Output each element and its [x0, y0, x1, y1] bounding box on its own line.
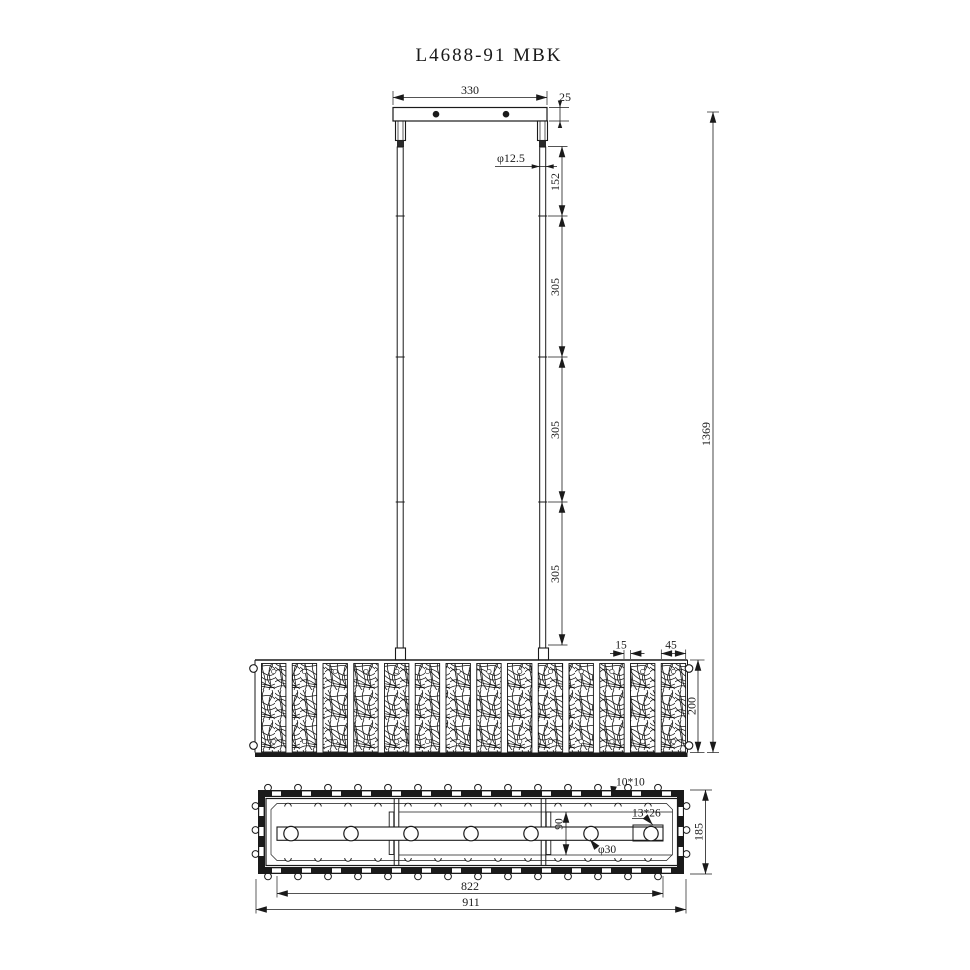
band-dash: [259, 847, 263, 856]
band-dash: [332, 868, 341, 872]
band-dash: [452, 791, 461, 795]
drawing-sheet: L4688-91 MBK 330 25: [0, 0, 970, 970]
lamp-holder: [344, 826, 358, 840]
crystal-panels: [262, 664, 686, 753]
canopy-screw: [433, 111, 440, 118]
dim-slot-size: 13*26: [632, 808, 661, 820]
crystal-clip: [495, 803, 502, 806]
panel-pin: [641, 669, 645, 673]
edge-bead: [252, 827, 259, 834]
band-dash: [632, 791, 641, 795]
band-dash: [422, 791, 431, 795]
panel-pin: [425, 669, 429, 673]
model-title: L4688-91 MBK: [416, 45, 563, 66]
crystal-panel: [600, 664, 624, 753]
lamp-holder: [464, 826, 478, 840]
shade-bottom-rail: [255, 753, 688, 758]
canopy-screw: [503, 111, 510, 118]
crystal-clip: [345, 803, 352, 806]
crystal-clip: [405, 858, 412, 861]
edge-bead: [295, 873, 302, 880]
dim-bead-size: 10*10: [616, 777, 645, 789]
lamp-holder: [584, 826, 598, 840]
crystal-panel: [292, 664, 316, 753]
panel-pin: [333, 669, 337, 673]
band-dash: [452, 868, 461, 872]
dim-shade-depth: 185: [692, 823, 706, 841]
panel-pin: [518, 739, 522, 743]
crystal-clip: [375, 803, 382, 806]
panel-pin: [395, 669, 399, 673]
shade-hook: [250, 742, 258, 750]
shade-hook: [250, 665, 258, 673]
band-dash: [632, 868, 641, 872]
band-dash: [512, 791, 521, 795]
panel-pin: [641, 739, 645, 743]
crystal-clip: [615, 803, 622, 806]
dim-center-offset: 90: [554, 818, 566, 830]
crystal-clip: [315, 803, 322, 806]
band-dash: [302, 791, 311, 795]
edge-bead: [445, 873, 452, 880]
ceiling-canopy: [393, 108, 547, 122]
crystal-panel: [631, 664, 655, 753]
crystal-clip: [435, 858, 442, 861]
panel-pin: [425, 739, 429, 743]
lamp-holder: [524, 826, 538, 840]
hanging-rod-left: [397, 147, 403, 648]
edge-bead: [265, 873, 272, 880]
shade-hanger: [539, 648, 549, 660]
edge-bead: [625, 873, 632, 880]
dim-rod-segment-2: 305: [548, 278, 562, 296]
crystal-clip: [465, 803, 472, 806]
crystal-clip: [345, 858, 352, 861]
crystal-clip: [405, 803, 412, 806]
front-view: 330 25 φ12.5: [250, 83, 719, 757]
panel-pin: [364, 739, 368, 743]
band-dash: [572, 791, 581, 795]
shade-hanger: [396, 648, 406, 660]
panel-pin: [610, 669, 614, 673]
band-dash: [392, 791, 401, 795]
crystal-panel: [323, 664, 347, 753]
dim-crystal-gap: 15: [615, 640, 627, 652]
panel-pin: [518, 669, 522, 673]
dim-overall-length: 911: [462, 895, 480, 909]
panel-pin: [395, 739, 399, 743]
dim-rod-diameter: φ12.5: [497, 151, 525, 165]
crystal-clip: [465, 858, 472, 861]
crystal-clip: [285, 858, 292, 861]
arrowhead: [532, 164, 540, 169]
band-dash: [272, 868, 281, 872]
dim-shade-height: 200: [685, 697, 699, 715]
crystal-clip: [555, 858, 562, 861]
dim-rod-segment-1: 152: [548, 173, 562, 191]
edge-bead: [252, 803, 259, 810]
dim-holder-diameter: φ30: [598, 844, 616, 856]
band-dash: [482, 868, 491, 872]
crystal-clip: [585, 858, 592, 861]
band-dash: [662, 868, 671, 872]
dim-rod-segment-4: 305: [548, 565, 562, 583]
crystal-clip: [285, 803, 292, 806]
edge-bead: [385, 873, 392, 880]
band-dash: [679, 827, 683, 836]
band-dash: [482, 791, 491, 795]
band-dash: [362, 868, 371, 872]
edge-bead: [683, 827, 690, 834]
edge-bead: [355, 873, 362, 880]
lamp-holder: [644, 826, 658, 840]
panel-pin: [272, 669, 276, 673]
crystal-clip: [435, 803, 442, 806]
panel-pin: [456, 739, 460, 743]
panel-pin: [548, 669, 552, 673]
crystal-clip: [555, 803, 562, 806]
band-dash: [542, 868, 551, 872]
technical-drawing: L4688-91 MBK 330 25: [0, 0, 970, 970]
band-dash: [512, 868, 521, 872]
panel-pin: [671, 739, 675, 743]
crystal-clip: [375, 858, 382, 861]
arrowhead: [546, 164, 554, 169]
band-dash: [422, 868, 431, 872]
edge-bead: [655, 873, 662, 880]
panel-pin: [548, 739, 552, 743]
plan-view: 90 10*10 13*26 φ30 185 822 911: [252, 777, 712, 914]
crystal-clip: [525, 803, 532, 806]
rod-coupler: [396, 121, 406, 141]
panel-pin: [272, 739, 276, 743]
band-dash: [272, 791, 281, 795]
edge-bead: [683, 851, 690, 858]
crystal-panel: [538, 664, 562, 753]
crystal-clip: [525, 858, 532, 861]
rod-nipple: [397, 141, 404, 148]
crystal-panel: [354, 664, 378, 753]
band-dash: [602, 791, 611, 795]
rod-coupler: [538, 121, 548, 141]
panel-pin: [487, 669, 491, 673]
crystal-panel: [415, 664, 439, 753]
crystal-panel: [477, 664, 501, 753]
crystal-clip: [645, 858, 652, 861]
panel-pin: [671, 669, 675, 673]
panel-pin: [579, 739, 583, 743]
crystal-clip: [645, 803, 652, 806]
band-dash: [602, 868, 611, 872]
crystal-clip: [615, 858, 622, 861]
band-dash: [572, 868, 581, 872]
edge-bead: [683, 803, 690, 810]
band-dash: [542, 791, 551, 795]
edge-bead: [252, 851, 259, 858]
edge-bead: [535, 873, 542, 880]
hanging-rod-right: [540, 147, 546, 648]
lamp-holder: [284, 826, 298, 840]
band-dash: [302, 868, 311, 872]
panel-pin: [487, 739, 491, 743]
dim-rod-segment-3: 305: [548, 421, 562, 439]
band-dash: [362, 791, 371, 795]
panel-pin: [364, 669, 368, 673]
band-dash: [662, 791, 671, 795]
crystal-panel: [385, 664, 409, 753]
dim-canopy-thickness: 25: [559, 90, 571, 104]
rod-nipple: [539, 141, 546, 148]
panel-pin: [302, 739, 306, 743]
band-dash: [679, 807, 683, 816]
edge-bead: [325, 873, 332, 880]
arrowhead: [558, 121, 562, 128]
band-dash: [679, 847, 683, 856]
band-dash: [259, 807, 263, 816]
edge-bead: [565, 873, 572, 880]
crystal-panel: [569, 664, 593, 753]
dim-canopy-width: 330: [461, 83, 479, 97]
dim-crystal-width: 45: [665, 640, 677, 652]
crystal-panel: [661, 664, 685, 753]
shade-hook: [685, 665, 693, 673]
crystal-clip: [585, 803, 592, 806]
panel-pin: [302, 669, 306, 673]
dim-inner-length: 822: [461, 879, 479, 893]
crystal-panel: [508, 664, 532, 753]
panel-pin: [456, 669, 460, 673]
band-dash: [332, 791, 341, 795]
crystal-panel: [262, 664, 286, 753]
panel-pin: [579, 669, 583, 673]
panel-pin: [333, 739, 337, 743]
crystal-clip: [315, 858, 322, 861]
lamp-holder: [404, 826, 418, 840]
edge-bead: [505, 873, 512, 880]
crystal-panel: [446, 664, 470, 753]
edge-bead: [415, 873, 422, 880]
shade-hook: [685, 742, 693, 750]
crystal-clip: [495, 858, 502, 861]
edge-bead: [595, 873, 602, 880]
panel-pin: [610, 739, 614, 743]
dim-overall-drop: 1369: [699, 422, 713, 446]
band-dash: [392, 868, 401, 872]
band-dash: [259, 827, 263, 836]
